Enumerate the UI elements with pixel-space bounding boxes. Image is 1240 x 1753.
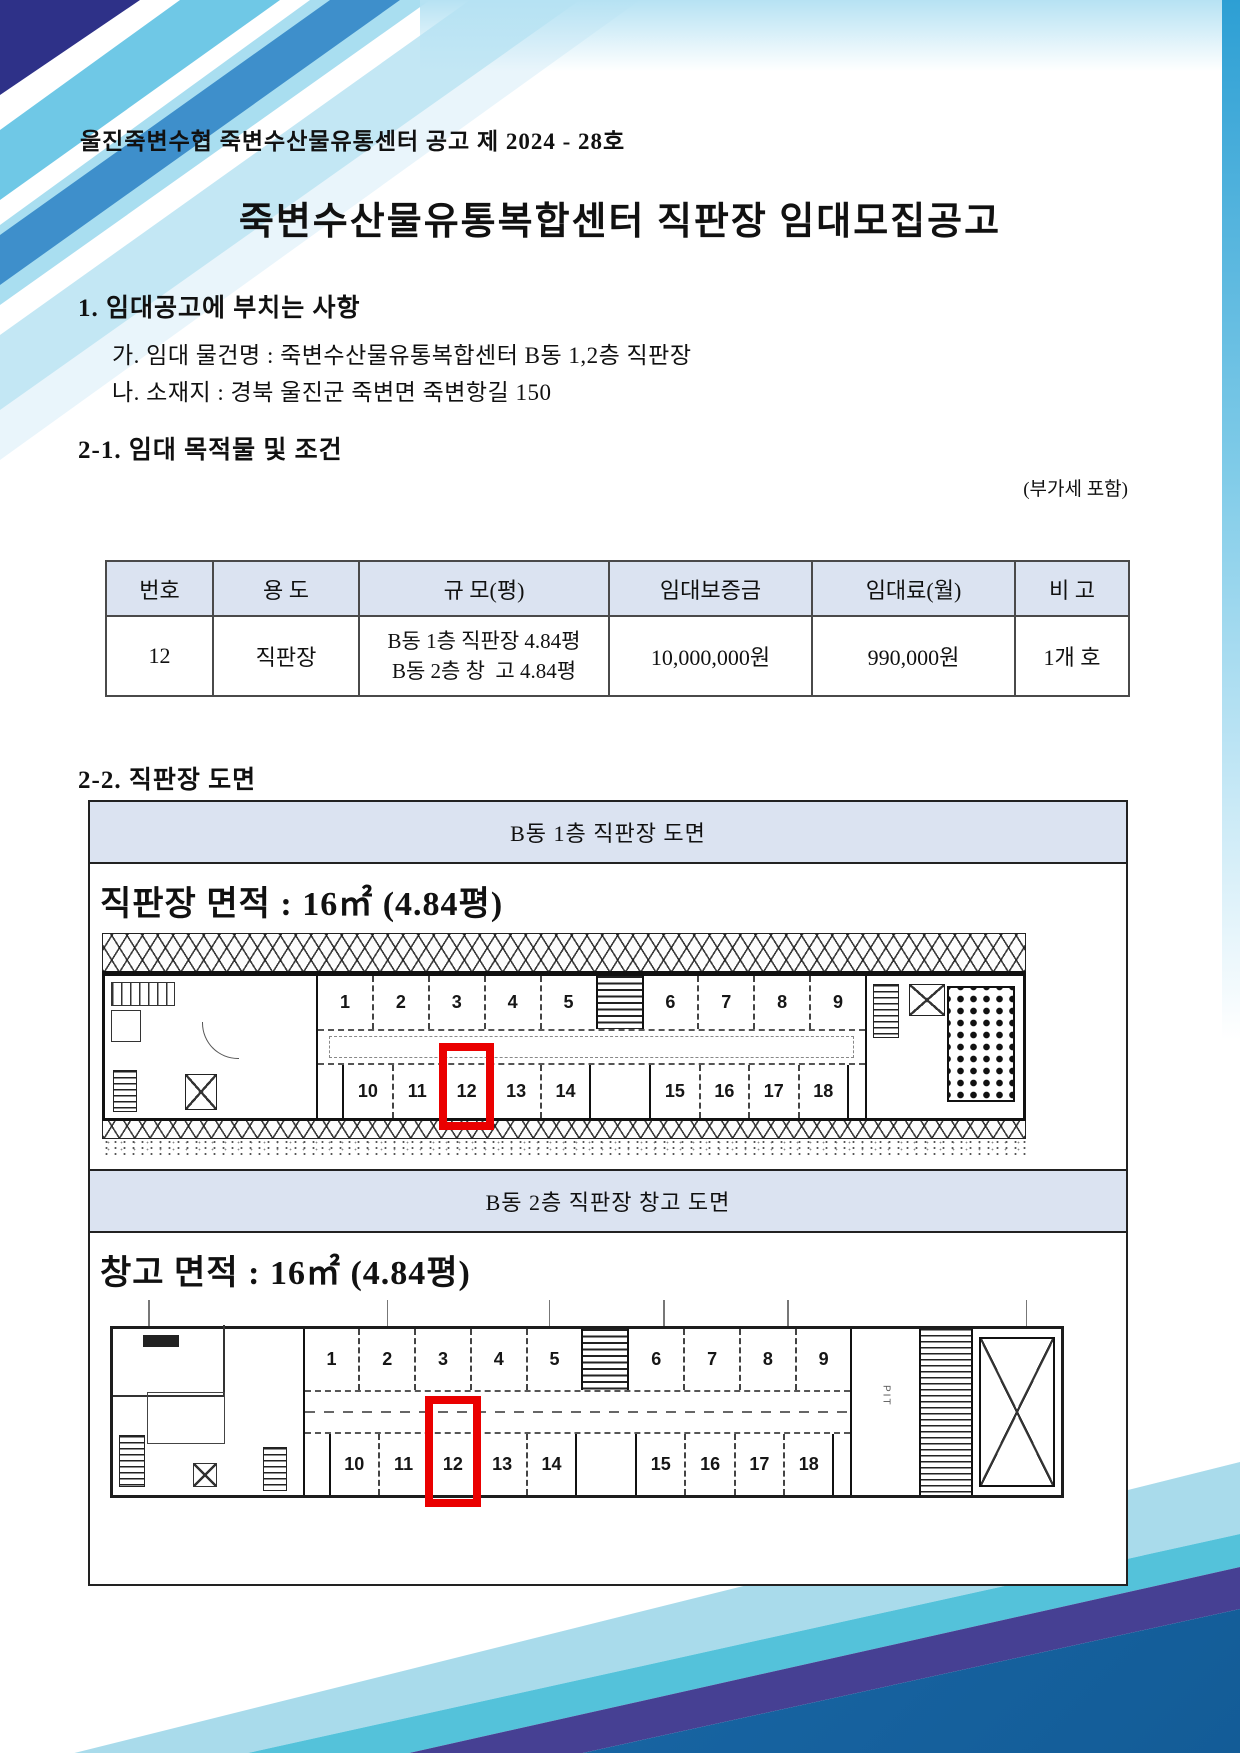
floor1-stall-15: 15 (651, 1065, 698, 1118)
stall-number: 10 (358, 1081, 378, 1102)
floor2-stall-12-highlighted: 12 (427, 1434, 476, 1495)
pit-label: PIT (880, 1385, 891, 1407)
stall-number: 18 (799, 1454, 819, 1475)
floor1-stall-12-highlighted: 12 (441, 1065, 490, 1118)
floor1-corridor (318, 1029, 865, 1065)
stall-number: 2 (396, 992, 406, 1013)
floor2-stall-row-top: 1 2 3 4 5 6 7 8 9 (305, 1329, 851, 1390)
floor2-stall-2: 2 (358, 1329, 414, 1390)
col-header-no: 번호 (106, 561, 213, 616)
cell-rent: 990,000원 (812, 616, 1015, 696)
floor1-stall-row-top: 1 2 3 4 5 6 7 8 9 (318, 976, 865, 1029)
stall-number: 11 (408, 1081, 427, 1102)
section1-heading: 1. 임대공고에 부치는 사항 (78, 288, 361, 324)
wall-gap (589, 1065, 651, 1118)
floor2-building: 1 2 3 4 5 6 7 8 9 (110, 1326, 1064, 1498)
table-row: 12 직판장 B동 1층 직판장 4.84평 B동 2층 창 고 4.84평 1… (106, 616, 1129, 696)
cell-note: 1개 호 (1015, 616, 1129, 696)
col-header-use: 용 도 (213, 561, 359, 616)
room (147, 1392, 225, 1444)
floor1-stall-6: 6 (644, 976, 698, 1029)
room (113, 1325, 225, 1397)
floor1-stall-3: 3 (428, 976, 484, 1029)
floor1-stall-11: 11 (392, 1065, 441, 1118)
document-content: 울진죽변수협 죽변수산물유통센터 공고 제 2024 - 28호 죽변수산물유통… (0, 0, 1240, 1753)
vat-note: (부가세 포함) (0, 474, 1128, 501)
page-title: 죽변수산물유통복합센터 직판장 임대모집공고 (60, 190, 1180, 245)
floor2-stall-5: 5 (526, 1329, 582, 1390)
col-header-note: 비 고 (1015, 561, 1129, 616)
stall-number: 2 (382, 1349, 392, 1370)
stall-number: 15 (651, 1454, 671, 1475)
stall-number: 12 (457, 1081, 477, 1102)
stall-number: 5 (550, 1349, 560, 1370)
cell-no: 12 (106, 616, 213, 696)
elevator-shaft (193, 1463, 217, 1487)
stall-number: 6 (651, 1349, 661, 1370)
floor2-stall-15: 15 (637, 1434, 684, 1495)
floor2-plan: 1 2 3 4 5 6 7 8 9 (110, 1300, 1064, 1498)
stall-number: 12 (443, 1454, 463, 1475)
table-header-row: 번호 용 도 규 모(평) 임대보증금 임대료(월) 비 고 (106, 561, 1129, 616)
floor2-stall-18: 18 (783, 1434, 832, 1495)
cell-deposit: 10,000,000원 (609, 616, 812, 696)
floor-plans-box: B동 1층 직판장 도면 직판장 면적 : 16㎡ (4.84평) 1 (88, 800, 1128, 1586)
floor2-stall-1: 1 (305, 1329, 359, 1390)
stall-number: 16 (714, 1081, 734, 1102)
stall-number: 8 (763, 1349, 773, 1370)
floor1-building: 1 2 3 4 5 6 7 8 9 (102, 971, 1026, 1121)
floor1-stall-18: 18 (798, 1065, 847, 1118)
floor2-stall-11: 11 (378, 1434, 427, 1495)
floor1-plan-title: B동 1층 직판장 도면 (90, 802, 1126, 864)
stairs (113, 1070, 137, 1112)
stall-number: 8 (777, 992, 787, 1013)
stall-number: 15 (665, 1081, 685, 1102)
floor2-stall-16: 16 (684, 1434, 733, 1495)
door-arc (202, 1022, 239, 1059)
floor1-stall-2: 2 (372, 976, 428, 1029)
floor2-area-label: 창고 면적 : 16㎡ (4.84평) (90, 1233, 1126, 1298)
floor2-left-rooms (113, 1329, 305, 1495)
floor1-stall-17: 17 (748, 1065, 797, 1118)
floor1-right-rooms (865, 976, 1023, 1118)
stall-number: 17 (764, 1081, 784, 1102)
small-room (111, 1010, 141, 1042)
floor1-stall-9: 9 (809, 976, 865, 1029)
stall-number: 17 (749, 1454, 769, 1475)
floor2-stall-8: 8 (739, 1329, 795, 1390)
floor2-right-rooms: PIT (850, 1329, 1061, 1495)
col-header-size: 규 모(평) (359, 561, 609, 616)
stairs (873, 984, 899, 1038)
stairs (263, 1447, 287, 1491)
floor2-stall-6: 6 (629, 1329, 683, 1390)
floor1-left-rooms (105, 976, 318, 1118)
floor2-stall-10: 10 (331, 1434, 378, 1495)
stall-number: 5 (564, 992, 574, 1013)
wall-spacer (318, 1065, 344, 1118)
stall-number: 4 (508, 992, 518, 1013)
lease-address: 나. 소재지 : 경북 울진군 죽변면 죽변항길 150 (112, 373, 551, 407)
floor1-plan: 1 2 3 4 5 6 7 8 9 (102, 933, 1026, 1155)
floor1-stall-8: 8 (753, 976, 809, 1029)
floor1-stall-16: 16 (699, 1065, 748, 1118)
machine-room (947, 986, 1015, 1102)
stall-number: 11 (394, 1454, 413, 1475)
floor2-plan-title: B동 2층 직판장 창고 도면 (90, 1169, 1126, 1233)
void-room (979, 1337, 1055, 1487)
floor2-stall-4: 4 (470, 1329, 526, 1390)
floor2-stall-7: 7 (683, 1329, 739, 1390)
stairs (921, 1329, 973, 1495)
wall-gap (575, 1434, 637, 1495)
toilet-stalls (111, 982, 175, 1006)
floor2-stall-14: 14 (526, 1434, 575, 1495)
col-header-deposit: 임대보증금 (609, 561, 812, 616)
stall-number: 3 (438, 1349, 448, 1370)
elevator-shaft (185, 1074, 217, 1110)
size-line-1: B동 1층 직판장 4.84평 (360, 626, 608, 656)
floor1-stall-area: 1 2 3 4 5 6 7 8 9 (318, 976, 865, 1118)
floor1-stall-7: 7 (697, 976, 753, 1029)
stall-number: 3 (452, 992, 462, 1013)
stall-number: 13 (506, 1081, 526, 1102)
stall-number: 9 (833, 992, 843, 1013)
stall-number: 16 (700, 1454, 720, 1475)
wall-hatch-band (102, 933, 1026, 973)
stall-number: 6 (665, 992, 675, 1013)
document-page: 울진죽변수협 죽변수산물유통센터 공고 제 2024 - 28호 죽변수산물유통… (0, 0, 1240, 1753)
stall-number: 18 (813, 1081, 833, 1102)
stall-number: 13 (492, 1454, 512, 1475)
floor2-stall-17: 17 (734, 1434, 783, 1495)
cell-size: B동 1층 직판장 4.84평 B동 2층 창 고 4.84평 (359, 616, 609, 696)
wall-spacer (832, 1434, 850, 1495)
stall-number: 4 (494, 1349, 504, 1370)
floor1-stall-1: 1 (318, 976, 372, 1029)
stall-number: 7 (721, 992, 731, 1013)
stall-number: 10 (344, 1454, 364, 1475)
stairs (581, 1329, 629, 1390)
stall-number: 1 (340, 992, 350, 1013)
stairs (596, 976, 644, 1029)
floor2-stall-13: 13 (477, 1434, 526, 1495)
floor2-stall-area: 1 2 3 4 5 6 7 8 9 (305, 1329, 851, 1495)
wall-spacer (847, 1065, 865, 1118)
size-line-2: B동 2층 창 고 4.84평 (360, 656, 608, 686)
floor1-stall-14: 14 (540, 1065, 589, 1118)
stall-number: 9 (819, 1349, 829, 1370)
document-number: 울진죽변수협 죽변수산물유통센터 공고 제 2024 - 28호 (80, 122, 625, 156)
floor1-stall-10: 10 (344, 1065, 391, 1118)
ground-stipple (102, 1139, 1026, 1155)
wall-spacer (305, 1434, 331, 1495)
floor1-stall-5: 5 (540, 976, 596, 1029)
cell-use: 직판장 (213, 616, 359, 696)
pit-shaft: PIT (852, 1329, 921, 1495)
section2-2-heading: 2-2. 직판장 도면 (78, 760, 256, 796)
stall-number: 14 (556, 1081, 576, 1102)
floor1-stall-4: 4 (484, 976, 540, 1029)
section2-1-heading: 2-1. 임대 목적물 및 조건 (78, 430, 343, 466)
stairs (119, 1435, 145, 1487)
floor2-stall-row-bottom: 10 11 12 13 14 15 16 17 18 (305, 1434, 851, 1495)
floor2-stall-9: 9 (795, 1329, 851, 1390)
elevator-shaft (909, 984, 945, 1016)
floor1-stall-row-bottom: 10 11 12 13 14 15 16 17 18 (318, 1065, 865, 1118)
wall-hatch-band (102, 1119, 1026, 1139)
corridor-dashed-counter (329, 1036, 854, 1058)
lease-conditions-table: 번호 용 도 규 모(평) 임대보증금 임대료(월) 비 고 12 직판장 B동… (105, 560, 1130, 697)
stall-number: 1 (326, 1349, 336, 1370)
lease-object-name: 가. 임대 물건명 : 죽변수산물유통복합센터 B동 1,2층 직판장 (112, 336, 692, 370)
floor2-corridor (305, 1390, 851, 1434)
col-header-rent: 임대료(월) (812, 561, 1015, 616)
stall-number: 14 (541, 1454, 561, 1475)
floor1-stall-13: 13 (490, 1065, 539, 1118)
stall-number: 7 (707, 1349, 717, 1370)
floor1-area-label: 직판장 면적 : 16㎡ (4.84평) (90, 864, 1126, 929)
floor2-stall-3: 3 (414, 1329, 470, 1390)
column-grid-lines (110, 1300, 1064, 1326)
